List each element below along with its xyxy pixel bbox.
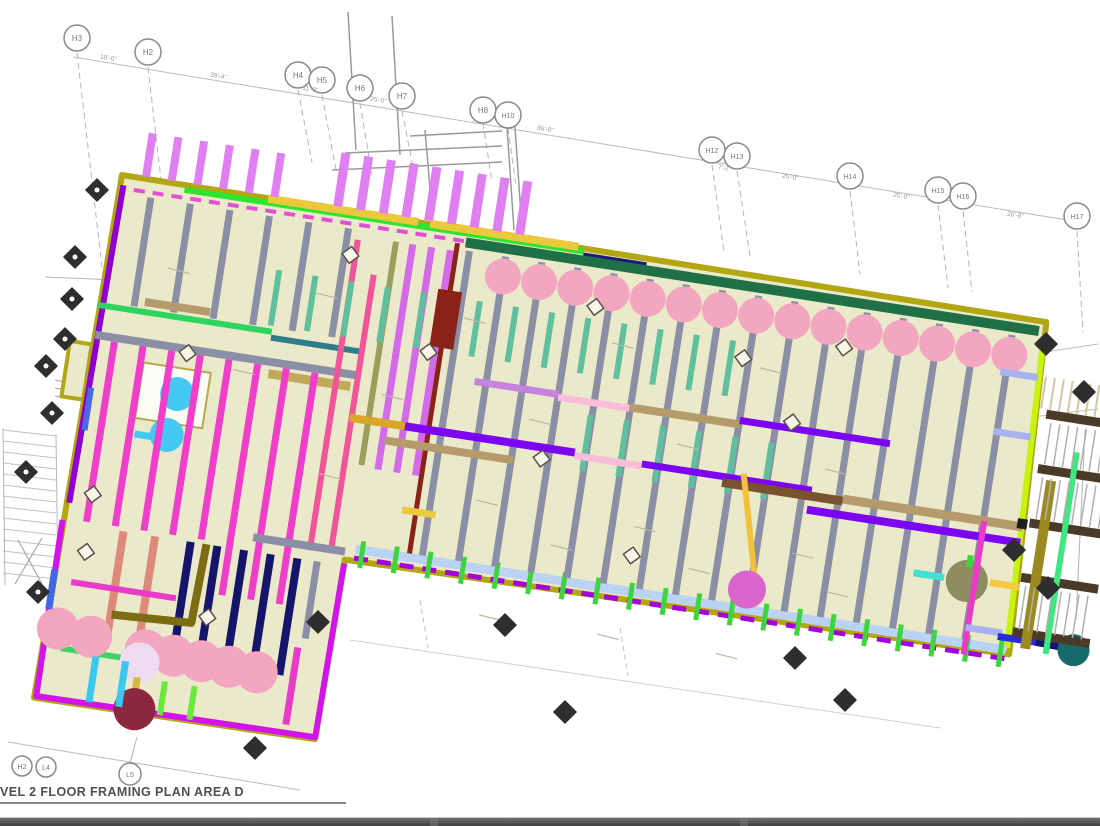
video-progress-bar[interactable] (0, 817, 1100, 826)
dim-label: 11'-2" (302, 85, 320, 95)
stair-diag-left (18, 540, 42, 584)
elevation-diamond-dot (95, 188, 100, 193)
elevation-diamond (554, 701, 577, 724)
stair-tread (1089, 430, 1095, 472)
dim-label: 26'-8" (1007, 211, 1025, 221)
tan-hatch (1094, 385, 1099, 417)
grid-leader (298, 90, 312, 162)
grid-bubble-label: L4 (42, 765, 50, 772)
stair-tread (1062, 426, 1068, 468)
elevation-diamond-dot (63, 337, 68, 342)
dim-label: 25'-0" (893, 192, 911, 202)
grid-leader (938, 205, 948, 288)
elevation-diamond (494, 614, 517, 637)
existing-beam-line (345, 146, 502, 153)
grid-bubble-label: H10 (502, 113, 515, 120)
stair-hatch-left (3, 441, 56, 447)
grid-bubble-label: L5 (126, 772, 134, 779)
grid-leader (322, 95, 336, 170)
green-stub (969, 555, 971, 567)
grid-bubble-label: H12 (706, 148, 719, 155)
violet-stub (172, 137, 179, 180)
elevation-diamond (244, 737, 267, 760)
grid-leader (712, 165, 724, 252)
stair-hatch-left (3, 496, 56, 502)
grid-leader (963, 211, 972, 292)
stair-hatch-left (3, 551, 56, 557)
beam-label-dash (597, 634, 619, 639)
existing-column-line (506, 112, 514, 230)
violet-stub (520, 181, 528, 234)
violet-stub (360, 157, 368, 210)
elevation-diamond-dot (70, 297, 75, 302)
violet-stub (451, 171, 459, 224)
stair-tread (1090, 486, 1096, 528)
stair-hatch-left (3, 518, 56, 524)
leader (420, 600, 428, 648)
grid-bubble-label: H14 (844, 174, 857, 181)
grid-bubble-label: H2 (143, 48, 154, 57)
grid-bubble-label: H7 (397, 92, 408, 101)
elevation-diamond-dot (73, 255, 78, 260)
grid-leader (737, 171, 750, 256)
violet-stub (274, 153, 281, 196)
leader (620, 628, 628, 676)
turquoise-seg (913, 573, 944, 578)
black-clip (1017, 518, 1028, 529)
elevation-diamond (784, 647, 807, 670)
grid-bubble-label: H6 (355, 84, 366, 93)
elevation-diamond (1073, 381, 1096, 404)
elevation-diamond-dot (44, 364, 49, 369)
grid-bubble-label: H17 (1071, 214, 1084, 221)
stair-beam-brown (1046, 414, 1100, 426)
stair-tread (1045, 423, 1051, 465)
stair-hatch-left (3, 540, 56, 546)
stair-hatch-left (3, 430, 56, 436)
elevation-diamond-dot (36, 590, 41, 595)
yellow-seg (990, 583, 1020, 588)
tan-hatch (1050, 378, 1055, 410)
stair-beam-brown (1038, 469, 1100, 481)
beam-label-dash (715, 653, 737, 658)
grid-bubble-label: H3 (72, 34, 83, 43)
elevation-diamond (834, 689, 857, 712)
grid-bubble-label: H4 (293, 71, 304, 80)
stair-hatch-left (3, 573, 56, 579)
existing-beam-line (410, 131, 502, 136)
violet-stub (146, 133, 153, 176)
plan-geometry (13, 116, 1100, 826)
dim-label: 25'-0" (370, 96, 388, 106)
stair-tread (1063, 593, 1070, 636)
violet-stub (223, 145, 230, 188)
stair-hatch-left (3, 562, 56, 568)
violet-stub (197, 141, 204, 184)
progress-tick (740, 818, 748, 826)
stair-hatch-left (3, 485, 56, 491)
grid-bubble-label: H16 (957, 194, 970, 201)
page: { "title": { "text": "VEL 2 FLOOR FRAMIN… (0, 0, 1100, 826)
stair-hatch-left (3, 452, 56, 458)
grid-leader (1077, 231, 1083, 332)
dim-label: 25'-0" (782, 173, 800, 183)
progress-tick (430, 818, 438, 826)
grid-bubble-label: H5 (317, 76, 328, 85)
grid-bubble-label: H2 (18, 764, 27, 771)
violet-stub (429, 167, 437, 220)
stair-tread (1072, 594, 1079, 637)
tan-hatch (1059, 379, 1064, 411)
elevation-diamond-dot (50, 411, 55, 416)
violet-stub (497, 178, 505, 231)
stair-hatch-left (3, 529, 56, 535)
violet-stub (406, 164, 414, 217)
grid-bubble-label: H15 (932, 188, 945, 195)
elevation-diamond-dot (24, 470, 29, 475)
dim-label: 7'-2" (717, 164, 732, 173)
title-block: VEL 2 FLOOR FRAMING PLAN AREA D (0, 785, 400, 799)
violet-stub (249, 149, 256, 192)
grid-leader (850, 191, 860, 274)
grid-bubble-label: H8 (478, 106, 489, 115)
framing-plan-svg: H3H2H4H5H6H7H8H10H12H13H14H15H16H1719'-0… (0, 0, 1100, 826)
tan-hatch (1068, 381, 1073, 413)
stair-hatch-left (3, 507, 56, 513)
grid-bubble-label: H13 (731, 154, 744, 161)
violet-stub (474, 174, 482, 227)
title-underline (0, 802, 346, 804)
leader (130, 737, 137, 763)
stair-tread (1053, 424, 1059, 466)
beam-label-dash (479, 615, 501, 620)
dim-line-bottom-edge (350, 640, 940, 728)
stair-rail-left (3, 428, 5, 585)
stair-tread (1081, 596, 1088, 639)
violet-stub (338, 153, 346, 206)
plan-title: VEL 2 FLOOR FRAMING PLAN AREA D (0, 785, 400, 799)
